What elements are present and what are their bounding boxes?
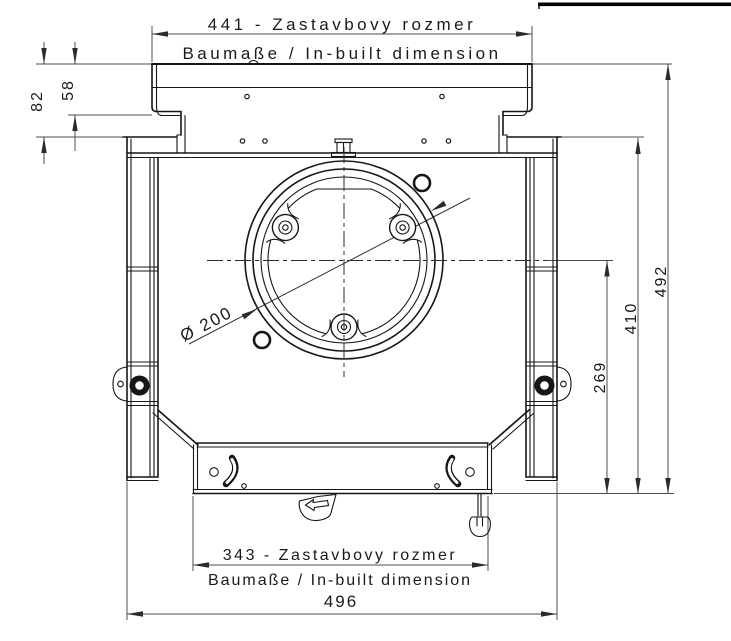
dim-top-note-label: Baumaße / In-built dimension [182,44,501,63]
dim-343-label: 343 - Zastavbovy rozmer [223,547,457,564]
dimension-labels: 441 - Zastavbovy rozmer Baumaße / In-bui… [29,15,670,611]
hanging-plug [470,494,491,537]
dim-496-label: 496 [324,592,358,611]
diameter-leader [189,198,470,344]
dim-410-label: 410 [623,302,640,335]
bottom-service-panel [193,443,492,537]
flange-rivet-holes [240,94,450,143]
left-mount-bracket [113,362,158,406]
condensate-flap [299,495,336,521]
dim-58-label: 58 [60,79,77,101]
fan-housing-front-view-drawing: 441 - Zastavbovy rozmer Baumaße / In-bui… [0,0,731,641]
right-mount-bracket [526,362,571,406]
technical-drawing-page: 441 - Zastavbovy rozmer Baumaße / In-bui… [0,0,731,641]
dim-bottom-note-label: Baumaße / In-built dimension [208,572,472,589]
dim-492-label: 492 [653,265,670,298]
left-side-rail [127,137,158,481]
dim-269-label: 269 [592,361,609,394]
frame-border-bar [538,3,731,10]
panel-key-slots [210,458,475,488]
dim-diameter-200-label: Ø 200 [177,303,236,346]
right-side-rail [526,137,557,481]
face-hole-lower-left [254,332,270,348]
dim-441-label: 441 - Zastavbovy rozmer [208,15,477,34]
dim-82-label: 82 [29,90,46,112]
face-hole-upper-right [414,175,430,191]
duct-spigot-assembly [207,147,547,377]
